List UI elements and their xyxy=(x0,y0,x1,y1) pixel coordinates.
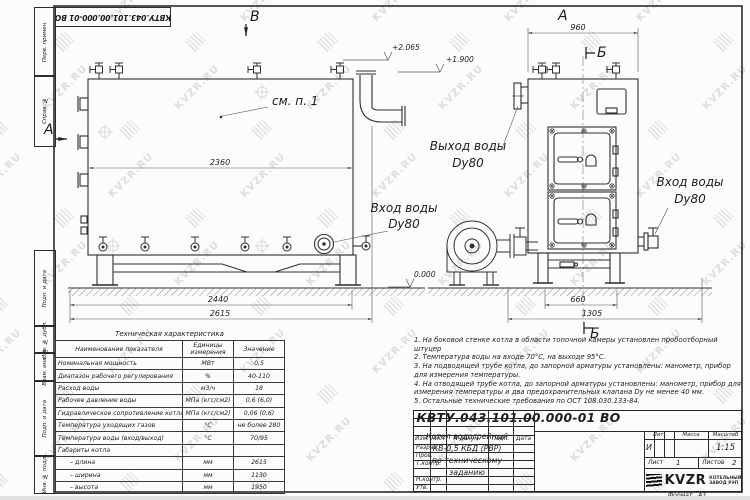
water-inlet-left-label: Вход воды xyxy=(371,201,438,215)
callout-texts: см. п. 1 Выход воды Dy80 Вход воды Dy80 … xyxy=(272,94,723,231)
stamp-podp-data-1: Подп. и дата xyxy=(34,250,56,327)
scale-value: 1:15 xyxy=(708,443,743,453)
stamp-podp-data-2: Подп. и дата xyxy=(34,380,56,457)
row-prov: Пров. xyxy=(416,453,433,459)
water-outlet-dn: Dy80 xyxy=(452,156,484,170)
water-inlet-left-dn: Dy80 xyxy=(388,217,420,231)
company-logo: KVZR КОТЕЛЬНЫЙ ЗАВОД РЭП xyxy=(644,468,743,493)
note-line: 1. На боковой стенке котла в области топ… xyxy=(414,336,741,353)
stamp-sprav-n: Справ. № xyxy=(34,75,56,147)
elev-top: +2.065 xyxy=(392,43,420,52)
spec-row: Расход водым3/ч18 xyxy=(56,382,285,394)
note-line: 4. На отводящей трубе котла, до запорной… xyxy=(414,380,741,397)
spec-row: Температура воды (вход/выход)°С70/95 xyxy=(56,432,285,444)
spec-row: Температура уходящих газов°Сне более 280 xyxy=(56,419,285,431)
spec-row: Диапазон рабочего регулирования%40-110 xyxy=(56,370,285,382)
registration-marks xyxy=(97,84,270,254)
sheet-value: 1 xyxy=(676,459,680,467)
col-podp: Подп. xyxy=(488,436,513,442)
spec-row: – ширинамм1130 xyxy=(56,469,285,481)
spec-row: – длинамм2615 xyxy=(56,457,285,469)
spec-row: Рабочее давление водыМПа (кгс/см2)0,6 (6… xyxy=(56,395,285,407)
spec-header-row: Наименование показателя Единицы измерени… xyxy=(56,341,285,358)
doc-number-top: КВТУ.043.101.00.000-01 ВО xyxy=(55,13,171,22)
company-name: KVZR xyxy=(665,473,707,488)
lit-label: Лит. xyxy=(644,432,674,438)
blower-fan xyxy=(447,221,538,285)
front-view xyxy=(428,56,712,322)
elev-mid: +1.900 xyxy=(446,55,474,64)
row-razrab: Разраб. xyxy=(416,445,439,451)
see-note-callout: см. п. 1 xyxy=(272,94,318,108)
dim-960: 960 xyxy=(570,23,585,32)
sheets-label: Листов xyxy=(702,459,724,466)
note-line: 5. Остальные технические требования по О… xyxy=(414,397,741,406)
dim-660: 660 xyxy=(570,295,585,304)
spec-row: Номинальная мощностьМВт0,5 xyxy=(56,358,285,370)
spec-table: Техническая характеристика Наименование … xyxy=(55,330,284,494)
technical-notes: 1. На боковой стенке котла в области топ… xyxy=(414,336,741,406)
kvzr-logo-icon xyxy=(646,474,662,487)
dim-2615: 2615 xyxy=(210,309,230,318)
sheet-bottom-edge xyxy=(0,496,750,500)
row-tkontr: Т.контр. xyxy=(416,461,441,467)
section-b-right: Б xyxy=(597,45,607,61)
elev-zero: 0.000 xyxy=(414,270,436,279)
water-outlet-label: Выход воды xyxy=(430,139,506,153)
water-inlet-right-label: Вход воды xyxy=(657,175,724,189)
doc-number-top-box: КВТУ.043.101.00.000-01 ВО xyxy=(55,7,171,27)
dim-2360: 2360 xyxy=(210,158,230,167)
scale-label: Масштаб xyxy=(708,432,743,438)
stamp-vzam-inv: Взам. инв. № xyxy=(34,352,56,382)
spec-row: – высотамм1950 xyxy=(56,481,285,493)
section-b-top: В xyxy=(250,9,260,25)
dim-2440: 2440 xyxy=(208,295,228,304)
stamp-perv-primen: Перв. примен. xyxy=(34,7,56,77)
sheet-label: Лист xyxy=(648,459,663,466)
side-view xyxy=(68,63,425,296)
drawing-sheet: KVZR.RUKVZR.RUKVZR.RUKVZR.RUKVZR.RUKVZR.… xyxy=(0,0,750,500)
col-data: Дата xyxy=(513,436,534,442)
lit-value: И xyxy=(644,443,654,452)
dimension-texts: 2360 2440 2615 960 660 1305 xyxy=(208,23,602,318)
row-nkontr: Н.контр. xyxy=(416,477,442,483)
callout-leaders xyxy=(220,106,668,242)
stamp-inv-podl: Инв. № подл. xyxy=(34,455,56,494)
note-line: 3. На подводящей трубе котла, до запорно… xyxy=(414,362,741,379)
spec-table-title: Техническая характеристика xyxy=(55,330,284,340)
company-subtitle: КОТЕЛЬНЫЙ ЗАВОД РЭП xyxy=(709,476,741,486)
elevation-marks xyxy=(343,52,444,287)
col-izm: Изм. xyxy=(414,436,430,442)
mass-label: Масса xyxy=(674,432,708,438)
col-list: Лист xyxy=(430,436,446,442)
spec-row: Гидравлическое сопротивление котлаМПа (к… xyxy=(56,407,285,419)
sheets-value: 2 xyxy=(732,459,736,467)
section-a-right: А xyxy=(557,8,568,24)
spec-col-unit: Единицы измерения xyxy=(183,341,234,358)
title-block: КВТУ.043.101.00.000-01 ВО Изм. Лист N до… xyxy=(413,410,742,492)
spec-row: Габариты котла xyxy=(56,444,285,456)
row-utv: Утв. xyxy=(416,485,428,491)
water-inlet-right-dn: Dy80 xyxy=(674,192,706,206)
note-line: 2. Температура воды на входе 70°С, на вы… xyxy=(414,353,741,362)
col-ndocum: N докум. xyxy=(446,436,488,442)
dim-1305: 1305 xyxy=(582,309,602,318)
spec-col-value: Значение xyxy=(234,341,285,358)
spec-col-name: Наименование показателя xyxy=(56,341,183,358)
